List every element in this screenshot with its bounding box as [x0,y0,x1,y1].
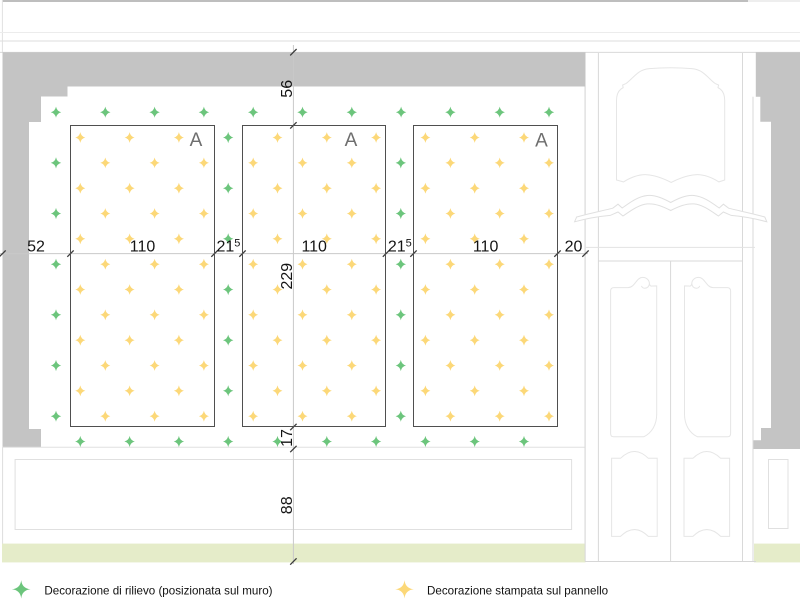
svg-text:20: 20 [565,239,583,256]
svg-text:Decorazione stampata sul panne: Decorazione stampata sul pannello [427,584,608,597]
svg-text:A: A [190,130,203,151]
svg-text:A: A [535,131,548,152]
svg-text:52: 52 [27,239,45,256]
svg-text:Decorazione di rilievo (posizi: Decorazione di rilievo (posizionata sul … [44,584,272,597]
svg-text:88: 88 [279,496,296,514]
svg-text:110: 110 [473,239,499,256]
svg-text:17: 17 [279,429,296,447]
svg-text:229: 229 [279,263,296,290]
svg-text:110: 110 [130,239,156,256]
svg-text:A: A [345,130,358,151]
svg-text:110: 110 [301,239,327,256]
svg-text:56: 56 [279,80,296,98]
